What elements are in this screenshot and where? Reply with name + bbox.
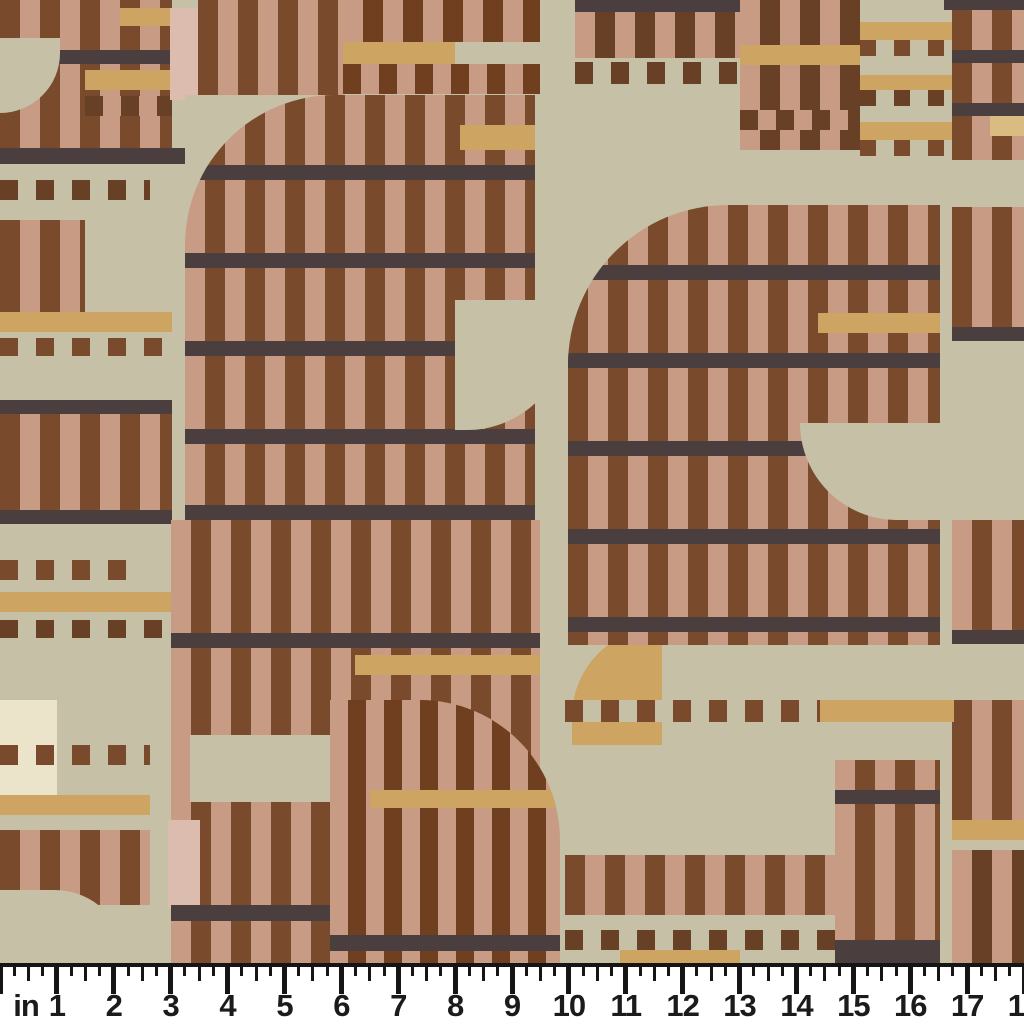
ruler-tick xyxy=(710,967,713,981)
fabric-patch xyxy=(171,633,540,648)
fabric-patch xyxy=(990,116,1024,136)
ruler-tick xyxy=(468,967,471,976)
ruler-tick xyxy=(752,967,755,976)
fabric-patch xyxy=(575,12,740,58)
ruler-tick xyxy=(809,967,812,976)
fabric-patch xyxy=(0,414,172,510)
fabric-patch xyxy=(820,700,954,722)
ruler-label: 16 xyxy=(894,990,926,1022)
ruler-tick xyxy=(895,967,898,976)
ruler-tick xyxy=(255,967,258,981)
ruler-tick xyxy=(525,967,528,976)
ruler-tick xyxy=(13,967,16,976)
ruler-tick xyxy=(951,967,954,976)
ruler-tick xyxy=(212,967,215,976)
ruler-tick xyxy=(41,967,44,976)
fabric-patch xyxy=(860,140,952,156)
fabric-patch xyxy=(85,96,172,116)
ruler-tick xyxy=(198,967,201,981)
ruler-label: 2 xyxy=(106,990,122,1022)
ruler-tick xyxy=(496,967,499,976)
fabric-patch xyxy=(952,207,1024,327)
fabric-patch xyxy=(952,103,1024,116)
ruler-tick xyxy=(653,967,656,981)
ruler-label: 11 xyxy=(610,990,641,1022)
ruler-label: 15 xyxy=(837,990,869,1022)
fabric-patch xyxy=(952,630,1024,644)
ruler-label: 18 xyxy=(1008,990,1024,1022)
ruler-tick xyxy=(326,967,329,976)
ruler-tick xyxy=(923,967,926,976)
ruler-tick xyxy=(368,967,371,981)
fabric-patch xyxy=(0,220,85,312)
fabric-patch xyxy=(0,400,172,414)
fabric-patch xyxy=(0,560,140,580)
ruler-label: 3 xyxy=(163,990,179,1022)
fabric-patch-band xyxy=(568,265,940,280)
ruler-tick xyxy=(866,967,869,976)
ruler-tick xyxy=(383,967,386,976)
fabric-patch xyxy=(0,148,185,164)
ruler-tick xyxy=(724,967,727,976)
ruler-label: 4 xyxy=(219,990,235,1022)
fabric-patch xyxy=(575,62,740,84)
fabric-patch-band xyxy=(370,790,560,808)
fabric-patch xyxy=(0,180,150,200)
ruler-tick xyxy=(127,967,130,976)
ruler-unit-label: in xyxy=(13,990,39,1022)
fabric-patch xyxy=(0,745,150,765)
ruler-tick xyxy=(994,967,997,981)
fabric-patch xyxy=(944,0,1024,10)
fabric-patch xyxy=(565,855,835,915)
fabric-patch xyxy=(455,300,567,430)
ruler-label: 10 xyxy=(553,990,585,1022)
ruler-label: 17 xyxy=(951,990,983,1022)
fabric-patch-band xyxy=(185,505,535,520)
ruler-label: 7 xyxy=(390,990,406,1022)
ruler-tick xyxy=(98,967,101,976)
fabric-patch xyxy=(343,64,540,94)
fabric-patch xyxy=(860,122,952,140)
fabric-patch xyxy=(0,338,172,356)
fabric-patch xyxy=(952,160,1024,207)
fabric-patch-band xyxy=(818,313,940,333)
ruler-label: 1 xyxy=(49,990,65,1022)
ruler-label: 6 xyxy=(333,990,349,1022)
ruler-tick xyxy=(425,967,428,981)
fabric-patch xyxy=(168,820,200,908)
fabric-patch xyxy=(565,930,835,950)
fabric-patch xyxy=(565,700,835,722)
ruler-tick xyxy=(980,967,983,976)
fabric-patch xyxy=(952,50,1024,63)
fabric-patch xyxy=(0,795,150,815)
fabric-swatch-page: in123456789101112131415161718 xyxy=(0,0,1024,1024)
fabric-patch-band xyxy=(185,165,535,180)
fabric-patch xyxy=(860,75,952,90)
fabric-patch-band xyxy=(568,529,940,544)
ruler-tick xyxy=(240,967,243,976)
fabric-patch xyxy=(85,70,172,90)
fabric-patch-band xyxy=(568,617,940,632)
fabric-patch xyxy=(860,22,952,40)
fabric-patch xyxy=(952,700,1024,820)
fabric-patch-band xyxy=(460,125,535,150)
ruler-tick xyxy=(767,967,770,981)
ruler-label: 12 xyxy=(666,990,698,1022)
fabric-patch xyxy=(952,327,1024,341)
fabric-patch xyxy=(740,45,862,65)
fabric-patch xyxy=(860,40,952,56)
ruler-tick xyxy=(781,967,784,976)
ruler-tick xyxy=(27,967,30,981)
ruler-tick xyxy=(141,967,144,981)
ruler-tick xyxy=(937,967,940,981)
ruler-tick xyxy=(539,967,542,981)
ruler-tick xyxy=(880,967,883,981)
ruler-label: 14 xyxy=(780,990,812,1022)
fabric-patch xyxy=(0,510,172,524)
ruler-label: 8 xyxy=(447,990,463,1022)
fabric-patch xyxy=(575,0,740,12)
ruler-tick xyxy=(667,967,670,976)
ruler-tick xyxy=(84,967,87,981)
fabric-patch-band xyxy=(185,253,535,268)
fabric-patch xyxy=(835,940,940,963)
fabric-patch xyxy=(952,520,1024,630)
ruler-tick xyxy=(838,967,841,976)
ruler-tick xyxy=(70,967,73,976)
inch-ruler: in123456789101112131415161718 xyxy=(0,963,1024,1024)
fabric-patch xyxy=(620,950,740,963)
fabric-patch xyxy=(952,820,1024,840)
ruler-tick xyxy=(596,967,599,981)
fabric-patch-band xyxy=(185,429,535,444)
ruler-label: 5 xyxy=(276,990,292,1022)
fabric-patch xyxy=(343,42,455,64)
ruler-tick xyxy=(411,967,414,976)
ruler-tick xyxy=(582,967,585,976)
ruler-tick xyxy=(695,967,698,976)
ruler-tick xyxy=(183,967,186,976)
fabric-patch xyxy=(860,90,952,106)
ruler-tick xyxy=(1008,967,1011,976)
ruler-tick xyxy=(354,967,357,976)
ruler-tick xyxy=(639,967,642,976)
fabric-patch xyxy=(170,8,200,100)
ruler-tick xyxy=(553,967,556,976)
fabric-patch xyxy=(835,790,940,804)
fabric-patch-band xyxy=(568,353,940,368)
ruler-label: 9 xyxy=(504,990,520,1022)
fabric-patch xyxy=(355,655,540,675)
ruler-tick xyxy=(823,967,826,981)
ruler-tick xyxy=(482,967,485,981)
fabric-patch xyxy=(190,735,335,802)
fabric-patch xyxy=(952,0,1024,160)
fabric-patch-band xyxy=(330,935,560,951)
fabric-patch xyxy=(952,850,1024,963)
ruler-label: 13 xyxy=(723,990,755,1022)
fabric-patch xyxy=(0,592,172,612)
fabric-patch xyxy=(0,312,172,332)
fabric-patch xyxy=(0,620,172,638)
ruler-tick xyxy=(269,967,272,976)
ruler-tick xyxy=(311,967,314,981)
fabric-pattern xyxy=(0,0,1024,963)
ruler-tick xyxy=(439,967,442,976)
ruler-tick xyxy=(155,967,158,976)
ruler-tick xyxy=(297,967,300,976)
fabric-patch xyxy=(343,0,540,42)
ruler-tick xyxy=(610,967,613,976)
ruler-tick xyxy=(0,967,3,994)
